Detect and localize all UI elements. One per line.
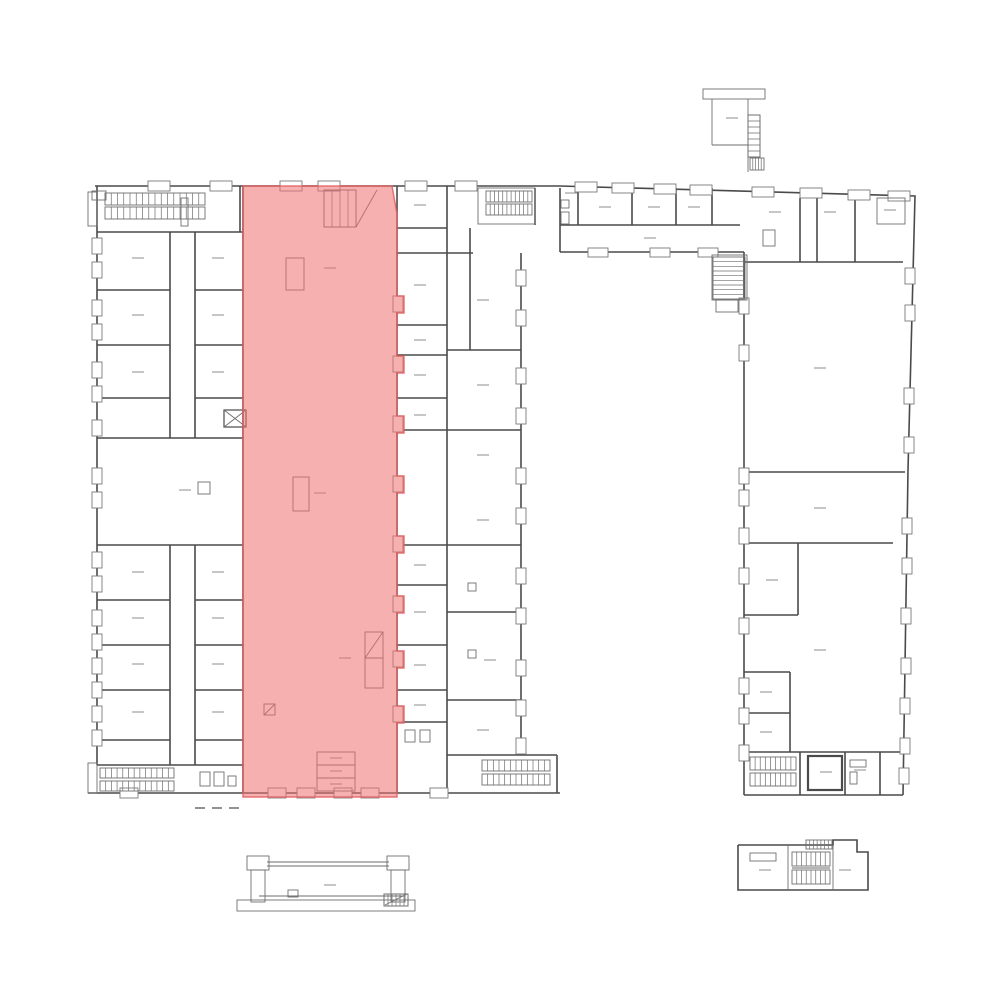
window-niche — [92, 634, 102, 650]
window-niche — [455, 181, 477, 191]
window-niche — [739, 745, 749, 761]
window-niche — [92, 262, 102, 278]
highlighted-hall-overlay[interactable] — [243, 186, 404, 797]
window-niche — [92, 730, 102, 746]
window-niche — [900, 738, 910, 754]
window-niche — [405, 181, 427, 191]
window-niche — [739, 618, 749, 634]
window-niche — [516, 660, 526, 676]
window-niche — [575, 182, 597, 192]
window-niche — [92, 324, 102, 340]
window-niche — [900, 698, 910, 714]
window-niche — [902, 518, 912, 534]
window-niche — [800, 188, 822, 198]
window-niche — [901, 658, 911, 674]
window-niche — [430, 788, 448, 798]
window-niche — [902, 558, 912, 574]
window-niche — [516, 738, 526, 754]
window-niche — [905, 268, 915, 284]
window-niche — [739, 468, 749, 484]
window-niche — [901, 608, 911, 624]
window-niche — [210, 181, 232, 191]
window-niche — [92, 552, 102, 568]
window-niche — [92, 362, 102, 378]
window-niche — [888, 191, 910, 201]
window-niche — [516, 408, 526, 424]
window-niche — [516, 270, 526, 286]
window-niche — [516, 568, 526, 584]
window-niche — [905, 305, 915, 321]
window-niche — [899, 768, 909, 784]
window-niche — [848, 190, 870, 200]
window-niche — [516, 468, 526, 484]
window-niche — [612, 183, 634, 193]
window-niche — [92, 610, 102, 626]
window-niche — [752, 187, 774, 197]
window-niche — [739, 568, 749, 584]
window-niche — [739, 678, 749, 694]
window-niche — [516, 508, 526, 524]
window-niche — [92, 420, 102, 436]
window-niche — [650, 248, 670, 257]
window-niche — [516, 700, 526, 716]
window-niche — [588, 248, 608, 257]
window-niche — [92, 492, 102, 508]
plan-background — [0, 0, 1000, 1000]
window-niche — [92, 658, 102, 674]
window-niche — [148, 181, 170, 191]
window-niche — [904, 437, 914, 453]
window-niche — [739, 528, 749, 544]
window-niche — [92, 706, 102, 722]
floorplan-drawing — [0, 0, 1000, 1000]
window-niche — [516, 310, 526, 326]
window-niche — [92, 300, 102, 316]
window-niche — [654, 184, 676, 194]
window-niche — [739, 490, 749, 506]
window-niche — [92, 238, 102, 254]
window-niche — [92, 386, 102, 402]
window-niche — [739, 708, 749, 724]
window-niche — [92, 682, 102, 698]
window-niche — [516, 608, 526, 624]
floorplan-page — [0, 0, 1000, 1000]
window-niche — [698, 248, 718, 257]
window-niche — [92, 468, 102, 484]
window-niche — [516, 368, 526, 384]
window-niche — [690, 185, 712, 195]
window-niche — [739, 345, 749, 361]
window-niche — [904, 388, 914, 404]
window-niche — [92, 576, 102, 592]
